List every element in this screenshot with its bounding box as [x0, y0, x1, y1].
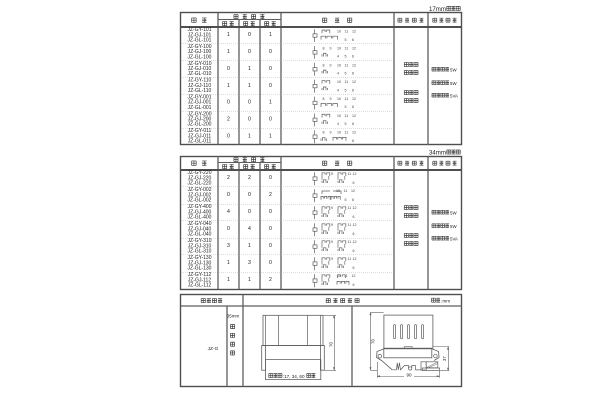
svg-text:12: 12	[352, 80, 356, 84]
svg-text:0: 0	[248, 100, 251, 106]
svg-text:12: 12	[353, 240, 357, 244]
svg-text:5: 5	[345, 38, 347, 42]
svg-text:0: 0	[269, 116, 272, 122]
svg-text:JZ-GL-400: JZ-GL-400	[188, 214, 212, 220]
svg-text:10: 10	[336, 189, 340, 193]
svg-text:JZ-GL-040: JZ-GL-040	[188, 231, 212, 237]
svg-text:4: 4	[337, 55, 339, 59]
svg-text:12: 12	[352, 30, 356, 34]
svg-text:0: 0	[269, 260, 272, 266]
svg-text:6: 6	[352, 38, 354, 42]
svg-text::17, 34, 60: :17, 34, 60	[283, 374, 305, 379]
svg-text:11: 11	[345, 46, 349, 50]
svg-text:JZ-GL-001: JZ-GL-001	[188, 105, 212, 111]
svg-text:11: 11	[348, 223, 352, 227]
svg-text:11: 11	[345, 97, 349, 101]
svg-text:0: 0	[269, 226, 272, 232]
svg-text:12: 12	[352, 46, 356, 50]
svg-text:6: 6	[352, 139, 354, 143]
svg-text:10: 10	[337, 114, 341, 118]
svg-text:3: 3	[227, 243, 230, 249]
svg-text:9: 9	[330, 63, 332, 67]
svg-text:11: 11	[345, 63, 349, 67]
svg-text:70: 70	[370, 339, 375, 344]
svg-text:4: 4	[227, 209, 230, 215]
svg-text:9: 9	[330, 46, 332, 50]
svg-text:0: 0	[227, 100, 230, 106]
svg-text:5W: 5W	[450, 67, 457, 72]
svg-text:0: 0	[269, 175, 272, 181]
svg-text:4: 4	[337, 72, 339, 76]
svg-text:JZ-GL-010: JZ-GL-010	[188, 71, 212, 77]
svg-text:12: 12	[353, 223, 357, 227]
svg-text:0: 0	[248, 209, 251, 215]
svg-text:9: 9	[331, 206, 333, 210]
svg-text:11: 11	[348, 206, 352, 210]
svg-text:0: 0	[269, 243, 272, 249]
svg-text:5: 5	[345, 72, 347, 76]
svg-text:5VA: 5VA	[450, 236, 458, 241]
svg-text:0: 0	[248, 32, 251, 38]
svg-text:6: 6	[352, 88, 354, 92]
svg-text:0: 0	[248, 116, 251, 122]
svg-text:1: 1	[269, 100, 272, 106]
svg-text:0: 0	[227, 226, 230, 232]
svg-text:12: 12	[352, 97, 356, 101]
svg-text:12: 12	[352, 131, 356, 135]
svg-text:JZ-GL-220: JZ-GL-220	[188, 180, 212, 186]
svg-text:2: 2	[227, 116, 230, 122]
svg-text:JZ-GL-310: JZ-GL-310	[188, 248, 212, 254]
svg-text:0: 0	[269, 66, 272, 72]
svg-text:12: 12	[353, 206, 357, 210]
svg-text:5W: 5W	[450, 210, 457, 215]
svg-text:1: 1	[227, 32, 230, 38]
svg-text:0: 0	[269, 83, 272, 89]
svg-text:12: 12	[353, 172, 357, 176]
svg-text:1: 1	[269, 32, 272, 38]
svg-text:9: 9	[331, 223, 333, 227]
svg-text::mm: :mm	[441, 299, 450, 304]
svg-text:5VA: 5VA	[450, 93, 458, 98]
svg-text:8: 8	[323, 97, 325, 101]
svg-text:11: 11	[344, 189, 348, 193]
svg-text:2: 2	[269, 277, 272, 283]
svg-text:10: 10	[337, 97, 341, 101]
svg-text:JZ-G: JZ-G	[208, 346, 219, 352]
svg-text:6: 6	[352, 198, 354, 202]
svg-text:9: 9	[331, 240, 333, 244]
svg-text:1: 1	[248, 66, 251, 72]
svg-text:1: 1	[248, 243, 251, 249]
svg-text:9: 9	[330, 131, 332, 135]
svg-text:2: 2	[248, 175, 251, 181]
svg-text:11: 11	[345, 80, 349, 84]
svg-text:12: 12	[353, 257, 357, 261]
svg-text:0: 0	[227, 66, 230, 72]
svg-text:12: 12	[352, 114, 356, 118]
svg-text:JZ-GL-011: JZ-GL-011	[188, 139, 212, 145]
svg-text:1: 1	[227, 260, 230, 266]
svg-text:11: 11	[345, 114, 349, 118]
svg-text:5: 5	[345, 105, 347, 109]
svg-text:1: 1	[227, 277, 230, 283]
svg-text:11: 11	[345, 30, 349, 34]
svg-text:0: 0	[248, 49, 251, 55]
svg-text:12: 12	[351, 189, 355, 193]
svg-text:10: 10	[337, 131, 341, 135]
svg-text:10: 10	[337, 80, 341, 84]
svg-text:9: 9	[331, 172, 333, 176]
svg-text:5W: 5W	[450, 224, 457, 229]
svg-text:2: 2	[269, 192, 272, 198]
svg-text:6: 6	[353, 266, 355, 270]
svg-text:0: 0	[227, 192, 230, 198]
svg-text:6: 6	[353, 249, 355, 253]
svg-text:1: 1	[269, 133, 272, 139]
svg-text:10: 10	[337, 63, 341, 67]
svg-text:6: 6	[353, 215, 355, 219]
svg-text:6: 6	[353, 283, 355, 287]
svg-text:12: 12	[352, 274, 356, 278]
svg-text:0: 0	[269, 209, 272, 215]
svg-text:0: 0	[269, 49, 272, 55]
svg-text:6: 6	[352, 105, 354, 109]
svg-text:0: 0	[248, 192, 251, 198]
svg-text:JZ-GL-200: JZ-GL-200	[188, 122, 212, 128]
svg-text:70: 70	[329, 342, 334, 347]
svg-text:1: 1	[248, 133, 251, 139]
svg-text:34mm: 34mm	[429, 150, 446, 157]
svg-text:4: 4	[337, 88, 339, 92]
svg-text:12: 12	[352, 63, 356, 67]
svg-text:11: 11	[348, 240, 352, 244]
svg-text:JZ-GL-130: JZ-GL-130	[188, 265, 212, 271]
svg-text:6: 6	[352, 72, 354, 76]
svg-text:11: 11	[348, 257, 352, 261]
svg-text:11: 11	[348, 172, 352, 176]
svg-text:10: 10	[337, 46, 341, 50]
svg-text:4: 4	[248, 226, 251, 232]
svg-text:8: 8	[323, 131, 325, 135]
svg-text:6: 6	[352, 55, 354, 59]
svg-text:1: 1	[248, 83, 251, 89]
svg-text:2: 2	[227, 175, 230, 181]
svg-text:JZ-GL-101: JZ-GL-101	[188, 37, 212, 43]
svg-text:10: 10	[337, 30, 341, 34]
svg-text:6: 6	[353, 181, 355, 185]
svg-text:11: 11	[345, 131, 349, 135]
svg-text:JZ-GL-112: JZ-GL-112	[188, 282, 212, 288]
svg-text:8: 8	[323, 46, 325, 50]
svg-text:35mm: 35mm	[227, 314, 240, 319]
svg-text:5: 5	[345, 55, 347, 59]
svg-text:9: 9	[331, 257, 333, 261]
svg-text:90: 90	[406, 373, 412, 378]
svg-text:5: 5	[345, 198, 347, 202]
svg-text:6: 6	[352, 122, 354, 126]
svg-text:3: 3	[248, 260, 251, 266]
svg-text:5W: 5W	[450, 81, 457, 86]
svg-text:37: 37	[442, 356, 447, 361]
svg-text:5: 5	[345, 88, 347, 92]
svg-text:8: 8	[323, 63, 325, 67]
svg-text:9: 9	[330, 97, 332, 101]
svg-text:0: 0	[227, 133, 230, 139]
svg-text:JZ-GL-002: JZ-GL-002	[188, 197, 212, 203]
svg-text:JZ-GL-110: JZ-GL-110	[188, 88, 212, 94]
svg-text:1: 1	[227, 83, 230, 89]
svg-text:1: 1	[248, 277, 251, 283]
svg-text:JZ-GL-100: JZ-GL-100	[188, 54, 212, 60]
svg-text:5: 5	[345, 122, 347, 126]
svg-text:4: 4	[337, 122, 339, 126]
svg-text:6: 6	[353, 232, 355, 236]
svg-text:1: 1	[227, 49, 230, 55]
